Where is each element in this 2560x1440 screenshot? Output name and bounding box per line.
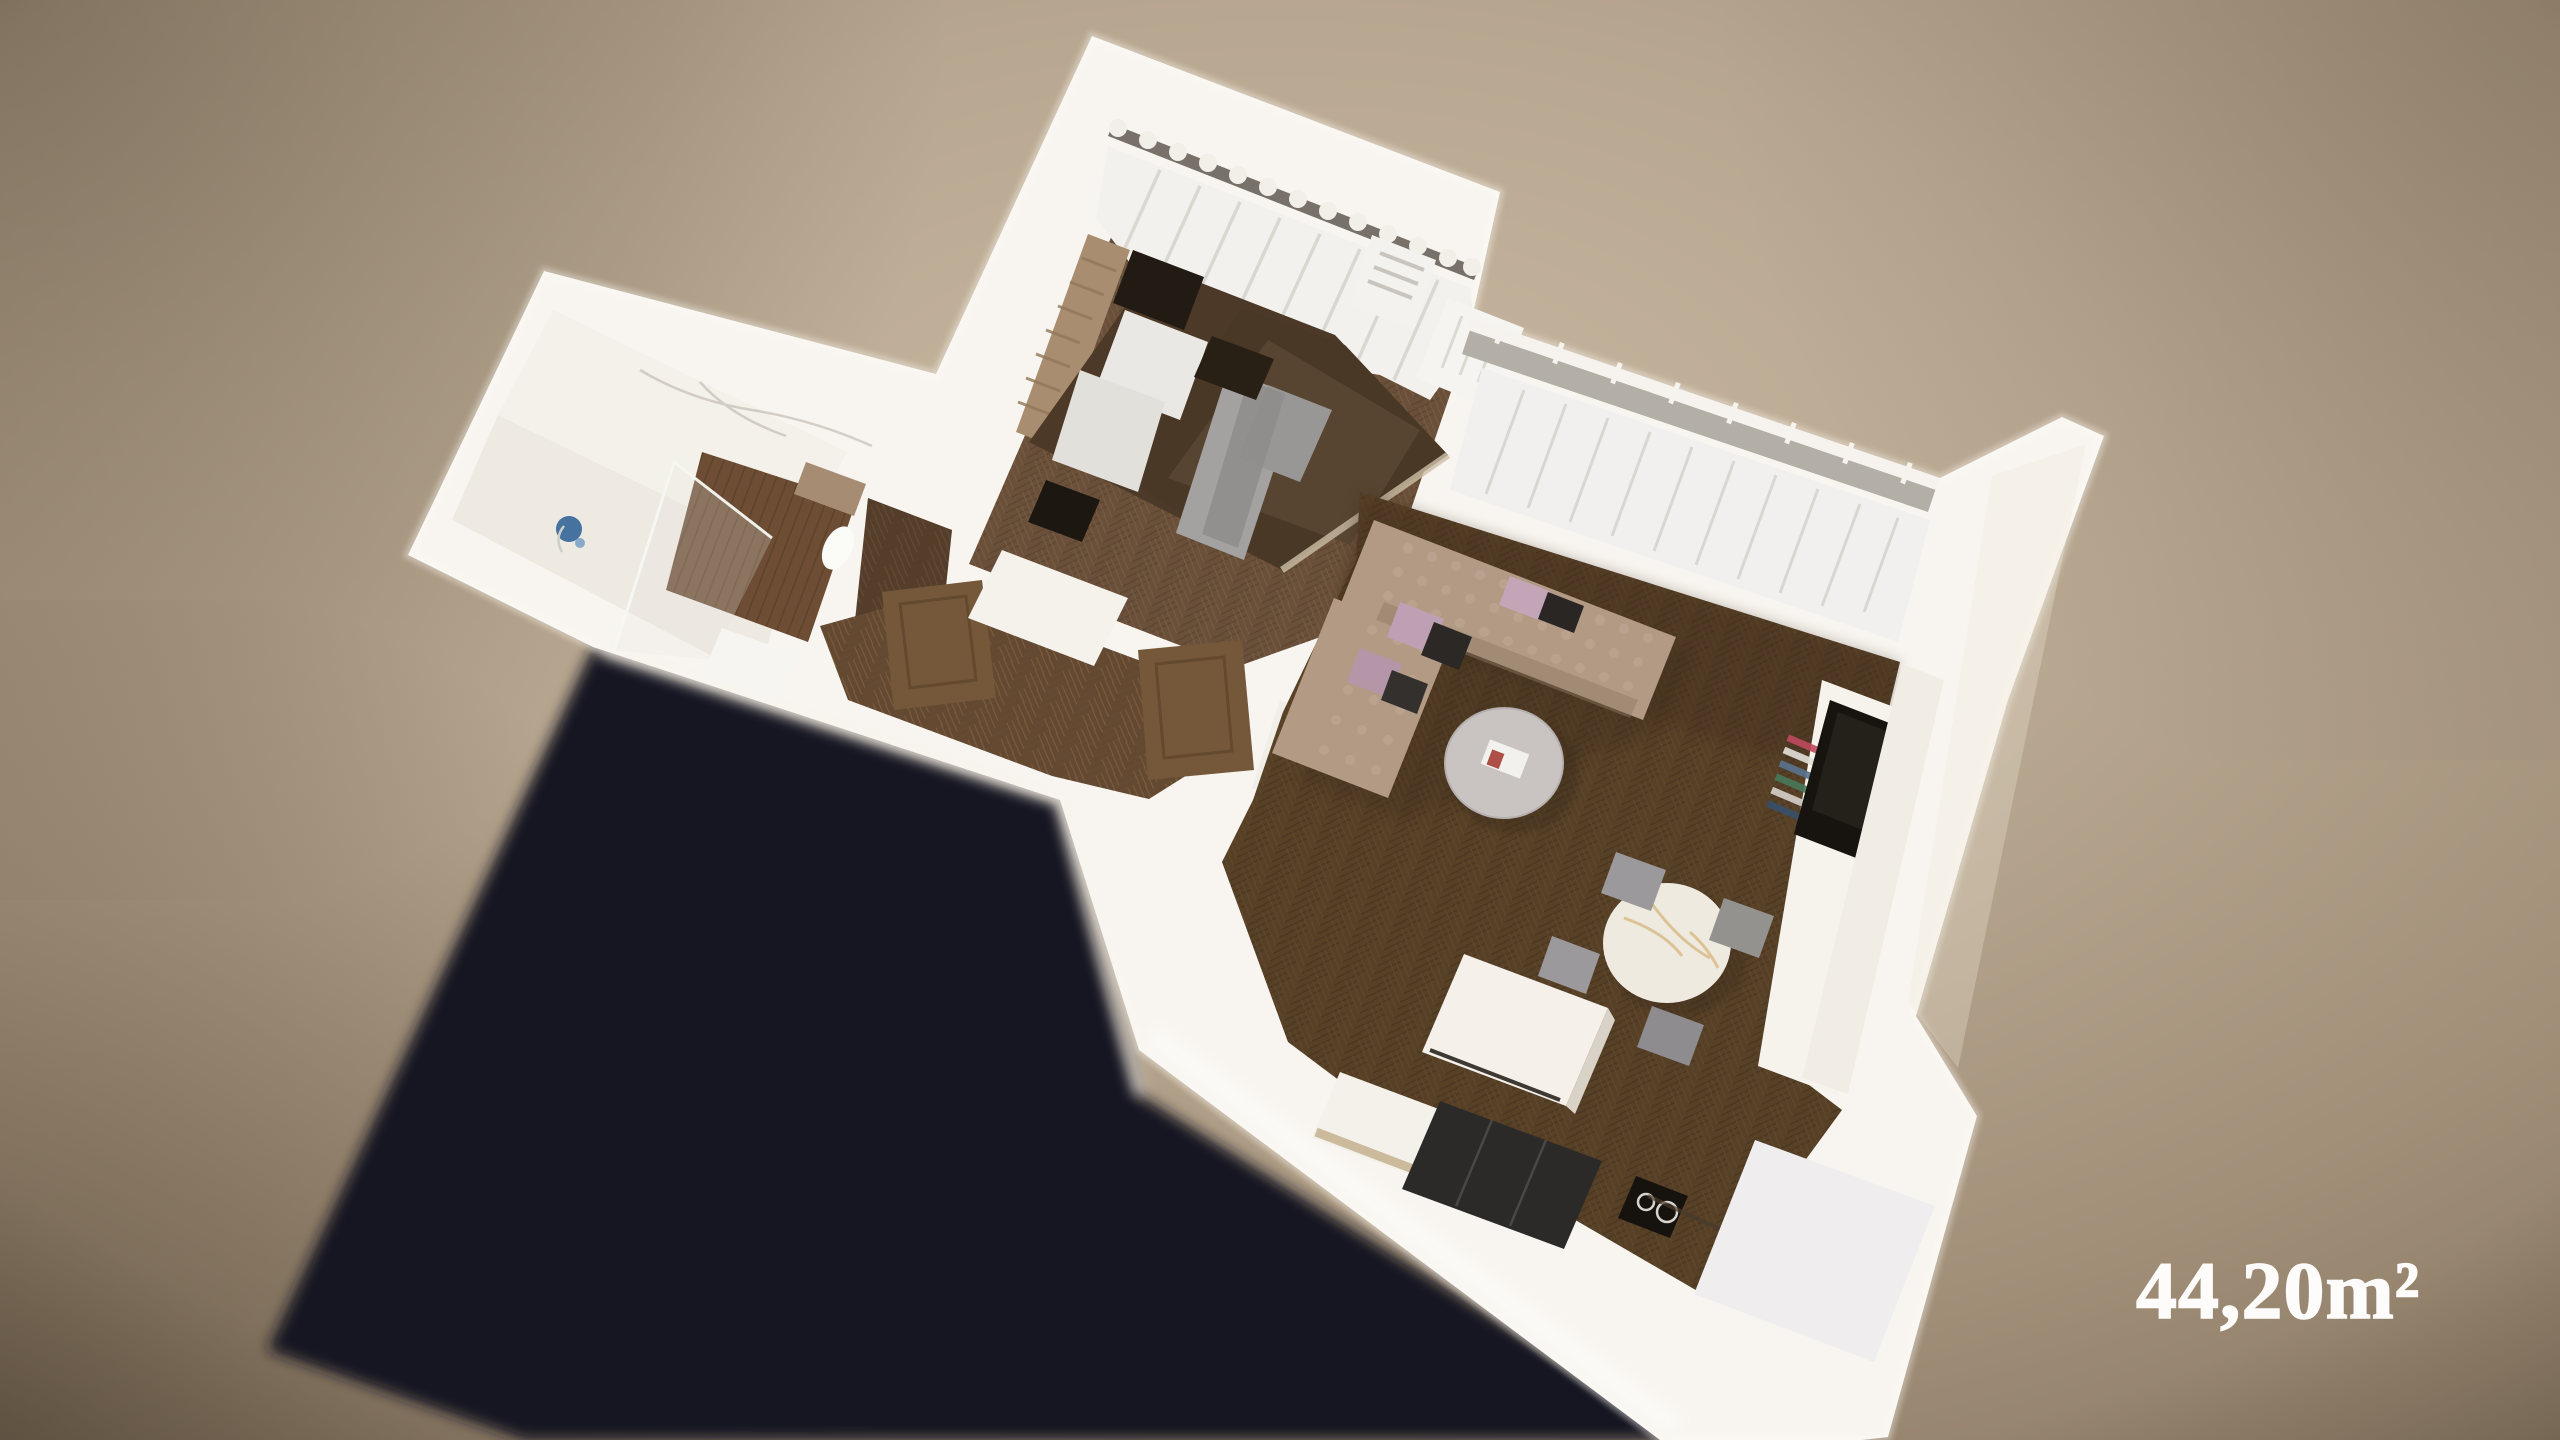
svg-text:44,20m²: 44,20m² [2136,1245,2420,1336]
